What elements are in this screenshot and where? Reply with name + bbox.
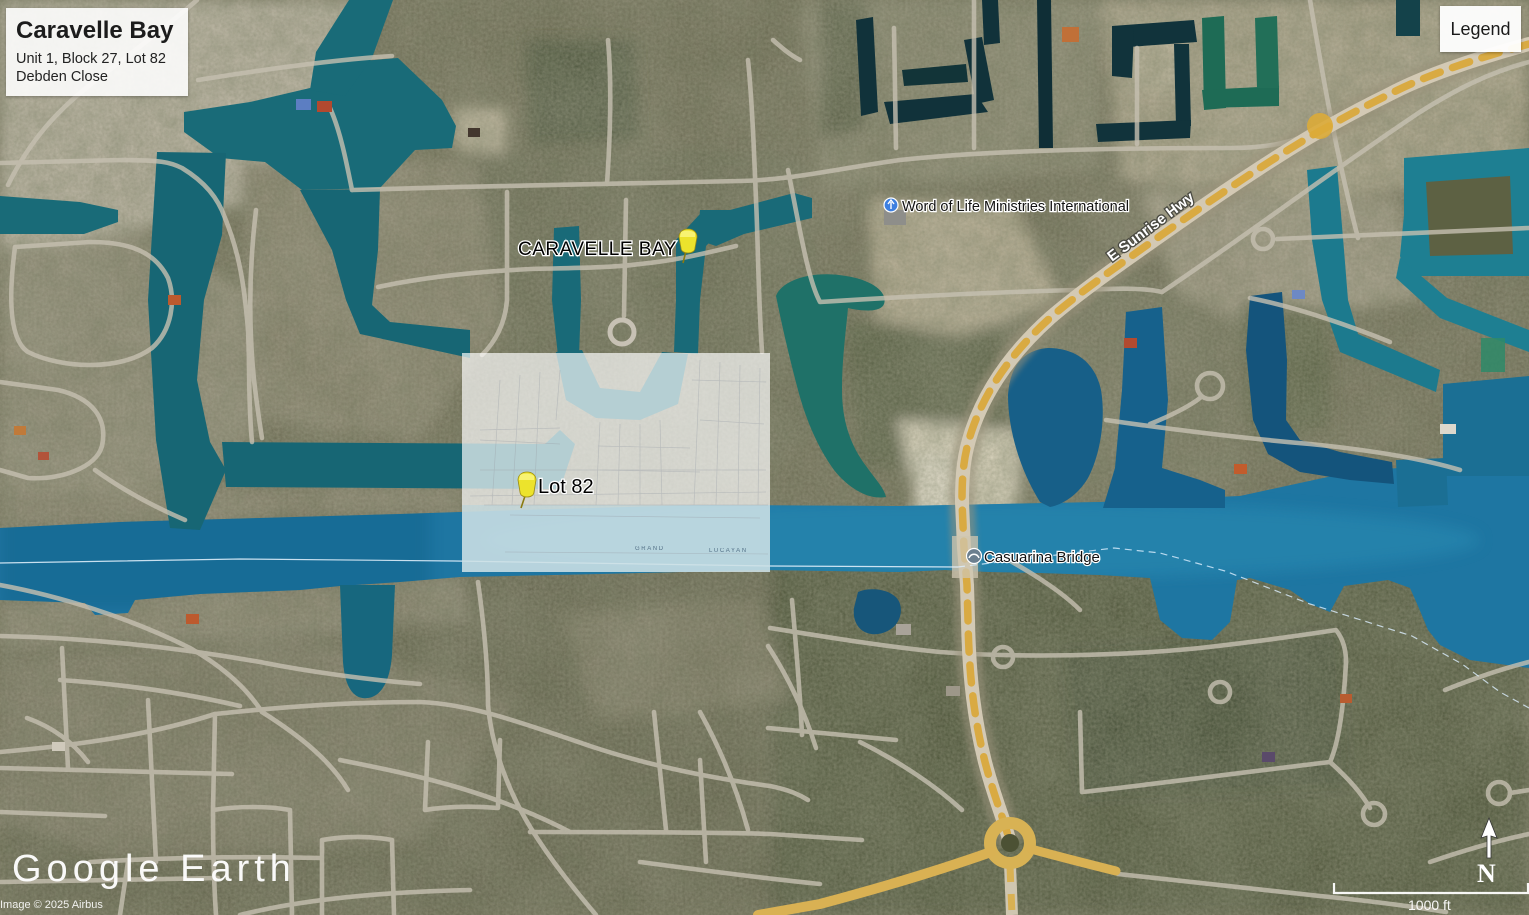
svg-text:N: N: [1477, 859, 1496, 888]
svg-text:1000 ft: 1000 ft: [1408, 897, 1451, 913]
svg-text:Image © 2025 Airbus: Image © 2025 Airbus: [0, 899, 103, 911]
svg-text:LUCAYAN: LUCAYAN: [709, 548, 748, 554]
svg-text:Lot 82: Lot 82: [538, 476, 594, 498]
svg-text:Word of Life Ministries Intern: Word of Life Ministries International: [902, 199, 1129, 215]
svg-text:CARAVELLE BAY: CARAVELLE BAY: [518, 239, 677, 260]
svg-text:GRAND: GRAND: [635, 546, 665, 552]
svg-text:Casuarina Bridge: Casuarina Bridge: [984, 549, 1100, 566]
svg-text:Google Earth: Google Earth: [12, 848, 296, 890]
